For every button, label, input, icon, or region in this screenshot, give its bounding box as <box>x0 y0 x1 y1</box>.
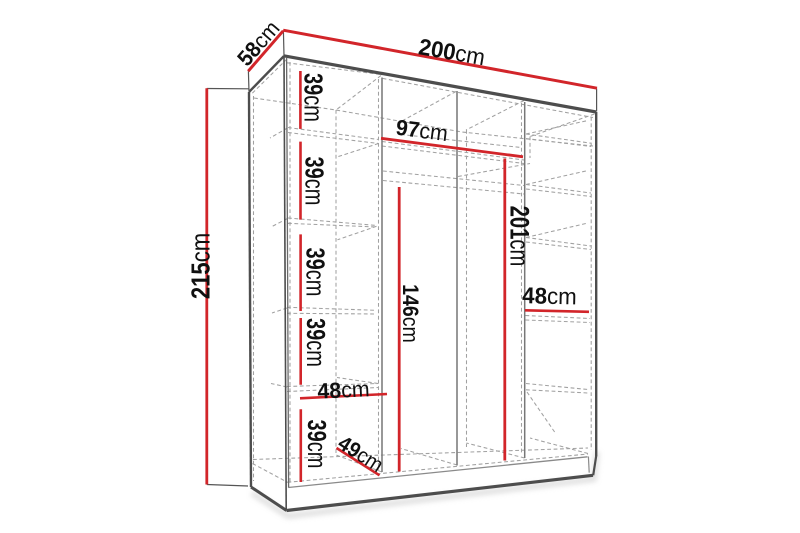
svg-text:39cm: 39cm <box>300 157 329 206</box>
svg-text:48cm: 48cm <box>317 376 370 404</box>
svg-text:201cm: 201cm <box>503 206 534 267</box>
svg-text:146cm: 146cm <box>398 284 422 343</box>
svg-text:39cm: 39cm <box>303 420 332 469</box>
svg-text:39cm: 39cm <box>299 73 328 122</box>
svg-text:48cm: 48cm <box>522 282 577 310</box>
svg-text:39cm: 39cm <box>302 318 331 367</box>
svg-text:49cm: 49cm <box>334 431 388 477</box>
svg-text:200cm: 200cm <box>417 33 487 70</box>
svg-text:215cm: 215cm <box>187 233 216 299</box>
svg-text:39cm: 39cm <box>301 248 330 297</box>
